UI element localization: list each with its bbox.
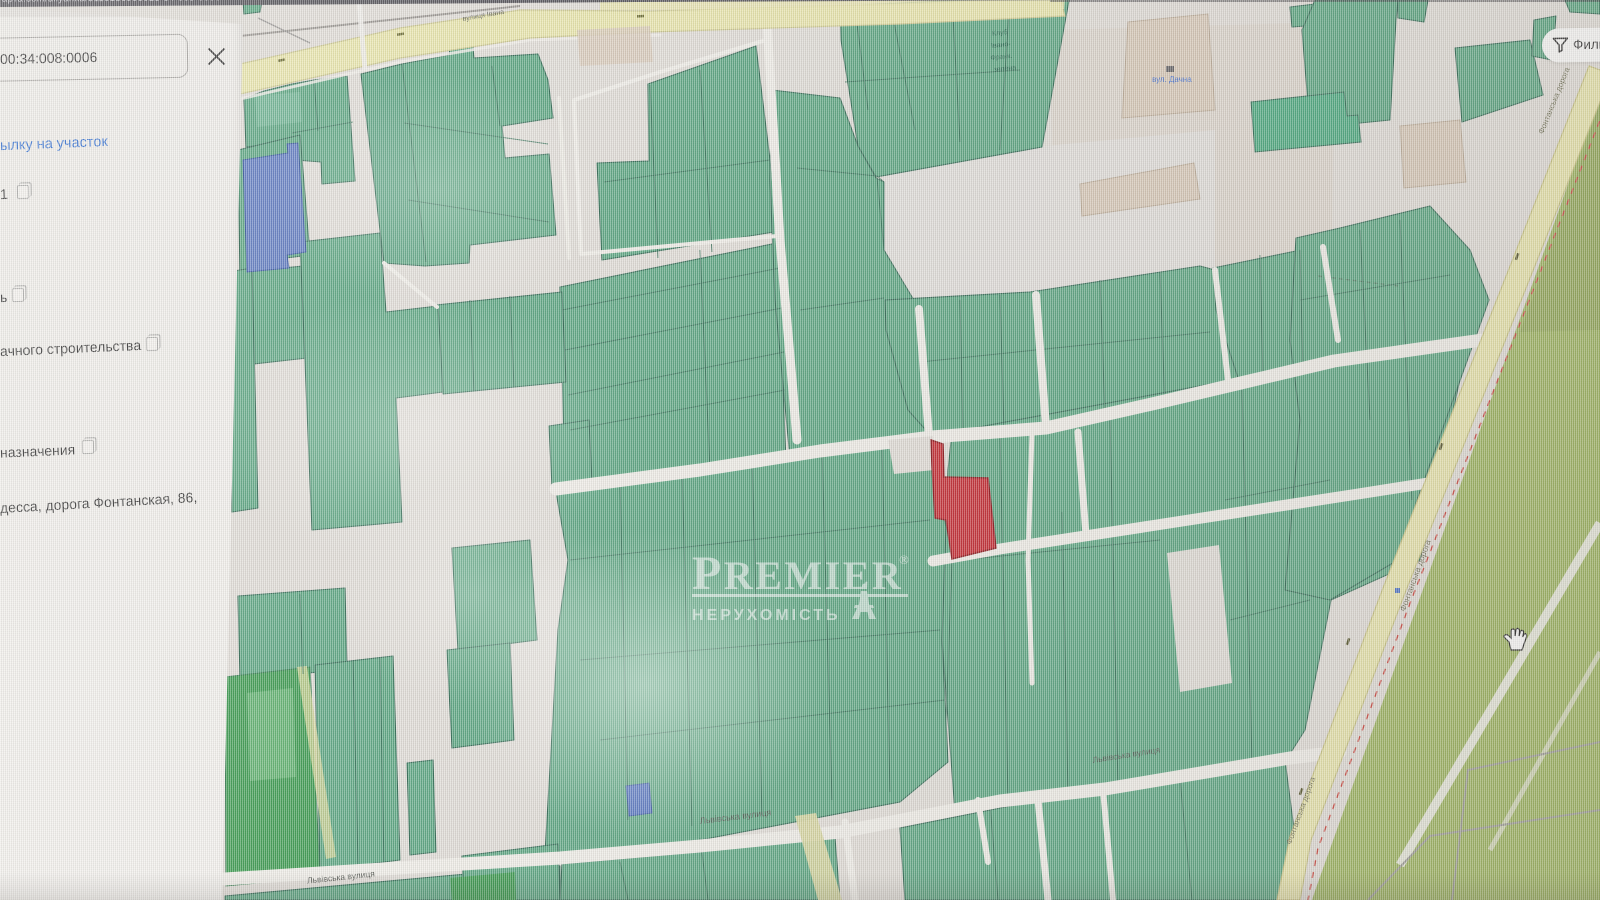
svg-text:PREMIER: PREMIER — [692, 547, 903, 600]
svg-text:®: ® — [899, 552, 909, 567]
svg-text:вул. Дачна: вул. Дачна — [1152, 75, 1192, 84]
svg-text:Клуб: Клуб — [991, 28, 1007, 38]
svg-text:НЕРУХОМІСТЬ: НЕРУХОМІСТЬ — [692, 607, 841, 624]
